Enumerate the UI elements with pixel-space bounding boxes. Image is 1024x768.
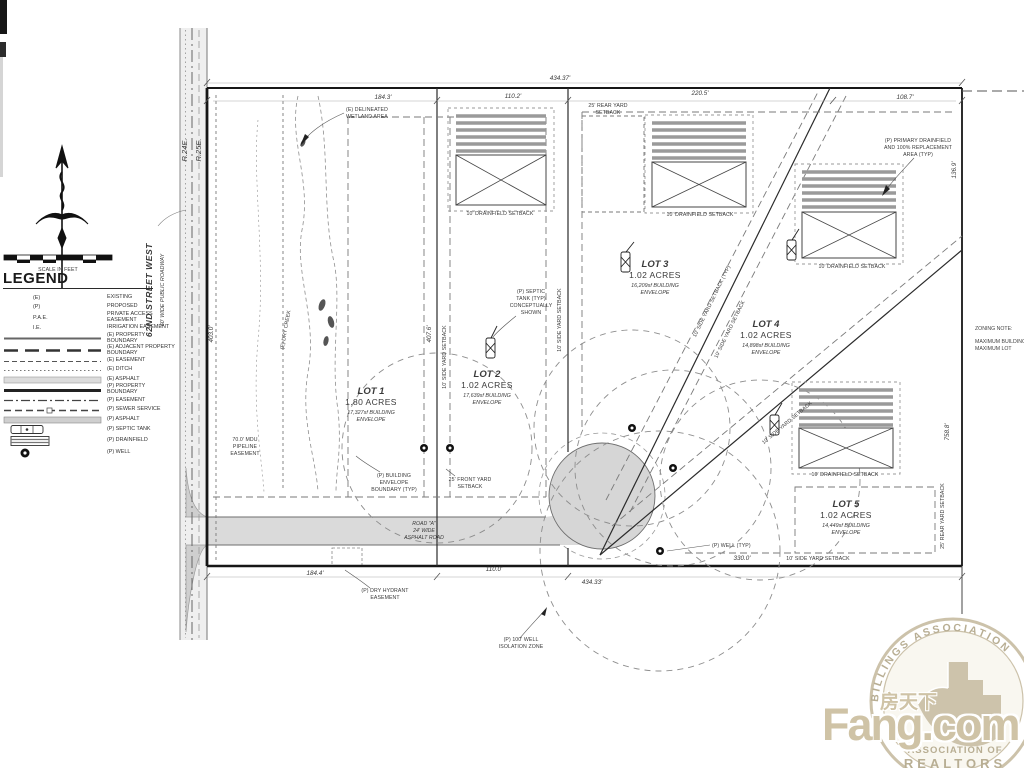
lot-4-label: LOT 4 1.02 ACRES 14,898sf BUILDING ENVEL… <box>740 319 792 356</box>
legend-abbr: (E) <box>3 295 40 301</box>
legend-row: (E) EASEMENT <box>3 357 175 366</box>
legend-row: (E) ADJACENT PROPERTY BOUNDARY <box>3 345 175 357</box>
legend-row: (E) PROPERTY BOUNDARY <box>3 333 175 345</box>
solid-line-icon <box>3 335 103 342</box>
dim-right-top: 136.9' <box>951 161 958 179</box>
sewer-line-icon <box>3 407 103 414</box>
asphalt-swatch-icon <box>3 376 103 384</box>
dim-bottom1: 184.4' <box>307 570 325 577</box>
dim-left: 403.0' <box>208 325 215 343</box>
dim-top3: 220.5' <box>691 90 710 97</box>
fang-domain-text: Fang.com <box>822 699 1019 751</box>
svg-text:ENVELOPE: ENVELOPE <box>751 350 780 356</box>
svg-text:AREA (TYP): AREA (TYP) <box>903 152 933 158</box>
svg-text:14,449sf BUILDING: 14,449sf BUILDING <box>822 523 870 529</box>
svg-text:ENVELOPE: ENVELOPE <box>356 417 385 423</box>
site-plan-page: 62ND STREET WEST 60' WIDE PUBLIC ROADWAY… <box>0 0 1024 768</box>
svg-text:BOUNDARY (TYP): BOUNDARY (TYP) <box>371 487 417 493</box>
svg-text:SETBACK: SETBACK <box>458 484 483 490</box>
dim-bottom2: 110.0' <box>486 566 503 573</box>
well-icon <box>628 424 636 432</box>
svg-text:10' DRAINFIELD SETBACK: 10' DRAINFIELD SETBACK <box>819 264 886 270</box>
well-isolation-label: (P) 100' WELL <box>504 637 539 643</box>
svg-text:24' WIDE: 24' WIDE <box>412 528 435 534</box>
legend-row: (P) DRAINFIELD <box>3 435 175 447</box>
svg-text:ASPHALT ROAD: ASPHALT ROAD <box>403 535 444 541</box>
side-setback-label: 10' SIDE YARD SETBACK <box>442 325 448 389</box>
svg-text:ISOLATION ZONE: ISOLATION ZONE <box>499 644 544 650</box>
svg-text:AND 100% REPLACEMENT: AND 100% REPLACEMENT <box>884 145 953 151</box>
dash-line-icon <box>3 358 103 365</box>
svg-text:LOT 2: LOT 2 <box>474 369 502 380</box>
well-typ-label: (P) WELL (TYP) <box>712 543 751 549</box>
legend-row: (P) ASPHALT <box>3 415 175 424</box>
legend-row: (P) SEWER SERVICE <box>3 406 175 415</box>
legend-abbr: (P) <box>3 304 40 310</box>
svg-text:LOT 1: LOT 1 <box>358 386 385 397</box>
legend-row: I.E. IRRIGATION EASEMENT <box>3 323 175 332</box>
svg-text:1.02 ACRES: 1.02 ACRES <box>820 510 872 520</box>
legend-abbr: P.A.E. <box>3 315 48 321</box>
legend-row: (E) EXISTING <box>3 293 175 302</box>
septic-tank-lot3 <box>621 242 634 272</box>
dim-top1: 184.3' <box>375 94 393 101</box>
septic-tank-icon <box>3 424 103 435</box>
dash-dot-line-icon <box>3 397 103 404</box>
svg-text:ENVELOPE: ENVELOPE <box>380 480 409 486</box>
drainfield-lot3 <box>652 123 746 207</box>
drainfield-setback-label: 10' DRAINFIELD SETBACK <box>467 211 534 217</box>
legend-row: P.A.E. PRIVATE ACCESS EASEMENT <box>3 312 175 324</box>
front-setback-label: 25' FRONT YARD <box>449 477 492 483</box>
drainfield-lot4 <box>802 172 896 258</box>
legend-row: (E) DITCH <box>3 366 175 375</box>
svg-text:SETBACK: SETBACK <box>596 110 621 116</box>
zoning-note-line: MAXIMUM LOT <box>975 346 1024 353</box>
dim-right-side: 758.8' <box>944 423 951 441</box>
well-icon <box>3 447 103 459</box>
lot-2-label: LOT 2 1.02 ACRES 17,639sf BUILDING ENVEL… <box>461 369 513 406</box>
fang-watermark: 房天下 Fang.com <box>822 686 1024 766</box>
dim-top2: 110.2' <box>505 93 522 100</box>
well-icon <box>420 444 428 452</box>
svg-text:TANK (TYP): TANK (TYP) <box>516 296 546 302</box>
dim-lot12: 407.6' <box>426 325 433 343</box>
road-a-label: ROAD "A" <box>412 521 437 527</box>
svg-text:WETLAND AREA: WETLAND AREA <box>346 114 388 120</box>
zoning-note: ZONING NOTE: MAXIMUM BUILDING MAXIMUM LO… <box>975 326 1024 353</box>
dry-creek-label: (E) DRY CREEK <box>280 309 293 350</box>
svg-text:PIPELINE: PIPELINE <box>233 444 258 450</box>
dot-line-icon <box>3 367 103 374</box>
svg-text:ENVELOPE: ENVELOPE <box>640 290 669 296</box>
zoning-note-line: MAXIMUM BUILDING <box>975 339 1024 346</box>
svg-text:CONCEPTUALLY: CONCEPTUALLY <box>510 303 553 309</box>
legend-row: (P) WELL <box>3 447 175 459</box>
svg-text:ENVELOPE: ENVELOPE <box>472 400 501 406</box>
legend-row: (P) PROPERTY BOUNDARY <box>3 384 175 396</box>
svg-text:10' SIDE YARD SETBACK: 10' SIDE YARD SETBACK <box>786 556 850 562</box>
svg-text:ENVELOPE: ENVELOPE <box>831 530 860 536</box>
long-dash-line-icon <box>3 347 103 354</box>
septic-tank-lot2 <box>486 326 497 358</box>
svg-text:17,327sf BUILDING: 17,327sf BUILDING <box>347 410 395 416</box>
septic-tank-lot4 <box>787 229 799 260</box>
well-icon <box>446 444 454 452</box>
lot-3-label: LOT 3 1.02 ACRES 16,209sf BUILDING ENVEL… <box>629 259 681 296</box>
dry-hydrant-label: (P) DRY HYDRANT <box>361 588 409 594</box>
lot-5-label: LOT 5 1.02 ACRES 14,449sf BUILDING ENVEL… <box>820 499 872 536</box>
drainfield-lot2 <box>456 116 546 205</box>
legend-rows: (E) EXISTING (P) PROPOSED P.A.E. PRIVATE… <box>3 293 175 459</box>
dim-bottom3: 330.0' <box>734 555 752 562</box>
svg-text:LOT 3: LOT 3 <box>642 259 670 270</box>
septic-label: (P) SEPTIC <box>517 289 545 295</box>
range-west-label: R.24E. <box>180 139 189 162</box>
svg-text:10' DRAINFIELD SETBACK: 10' DRAINFIELD SETBACK <box>667 212 734 218</box>
legend-panel: LEGEND (E) EXISTING (P) PROPOSED P.A.E. … <box>3 270 175 459</box>
rear-setback-rot-label: 25' REAR YARD SETBACK <box>940 483 946 549</box>
rear-setback-label: 25' REAR YARD <box>588 103 627 109</box>
lot-1-label: LOT 1 1.80 ACRES 17,327sf BUILDING ENVEL… <box>345 386 397 423</box>
dim-top-overall: 434.37' <box>550 75 571 82</box>
svg-text:EASEMENT: EASEMENT <box>230 451 260 457</box>
svg-text:10' DRAINFIELD SETBACK: 10' DRAINFIELD SETBACK <box>812 472 879 478</box>
dim-bottom-overall: 434.33' <box>582 579 603 586</box>
svg-text:1.80 ACRES: 1.80 ACRES <box>345 397 397 407</box>
zoning-note-title: ZONING NOTE: <box>975 326 1024 333</box>
svg-text:17,639sf BUILDING: 17,639sf BUILDING <box>463 393 511 399</box>
wetland-label: (E) DELINEATED <box>346 107 388 113</box>
dim-top4: 108.7' <box>897 94 915 101</box>
scan-artifact <box>0 0 7 177</box>
svg-text:SHOWN: SHOWN <box>521 310 542 316</box>
well-icon <box>669 464 677 472</box>
asphalt-swatch-icon <box>3 416 103 424</box>
drainfield-icon <box>3 435 103 447</box>
svg-text:LOT 5: LOT 5 <box>833 499 861 510</box>
range-east-label: R.25E. <box>194 139 203 162</box>
drainfield-lot5 <box>799 390 893 468</box>
primary-drainfield-label: (P) PRIMARY DRAINFIELD <box>885 138 951 144</box>
legend-row: (P) SEPTIC TANK <box>3 424 175 435</box>
legend-row: (E) ASPHALT <box>3 375 175 384</box>
svg-text:1.02 ACRES: 1.02 ACRES <box>629 270 681 280</box>
svg-text:16,209sf BUILDING: 16,209sf BUILDING <box>631 283 679 289</box>
svg-text:1.02 ACRES: 1.02 ACRES <box>740 330 792 340</box>
creek-wetland <box>256 96 339 492</box>
svg-text:14,898sf BUILDING: 14,898sf BUILDING <box>742 343 790 349</box>
legend-title: LEGEND <box>3 270 153 289</box>
svg-text:EASEMENT: EASEMENT <box>370 595 400 601</box>
legend-abbr: I.E. <box>3 325 41 331</box>
well-icon <box>656 547 664 555</box>
svg-text:1.02 ACRES: 1.02 ACRES <box>461 380 513 390</box>
svg-text:10' SIDE YARD SETBACK: 10' SIDE YARD SETBACK <box>557 288 563 352</box>
road-a <box>207 433 665 566</box>
legend-row: (P) EASEMENT <box>3 396 175 405</box>
mdu-easement-label: 70.0' MDU <box>232 437 257 443</box>
heavy-line-icon <box>3 387 103 394</box>
building-envelope-label: (P) BUILDING <box>377 473 411 479</box>
svg-text:LOT 4: LOT 4 <box>753 319 781 330</box>
